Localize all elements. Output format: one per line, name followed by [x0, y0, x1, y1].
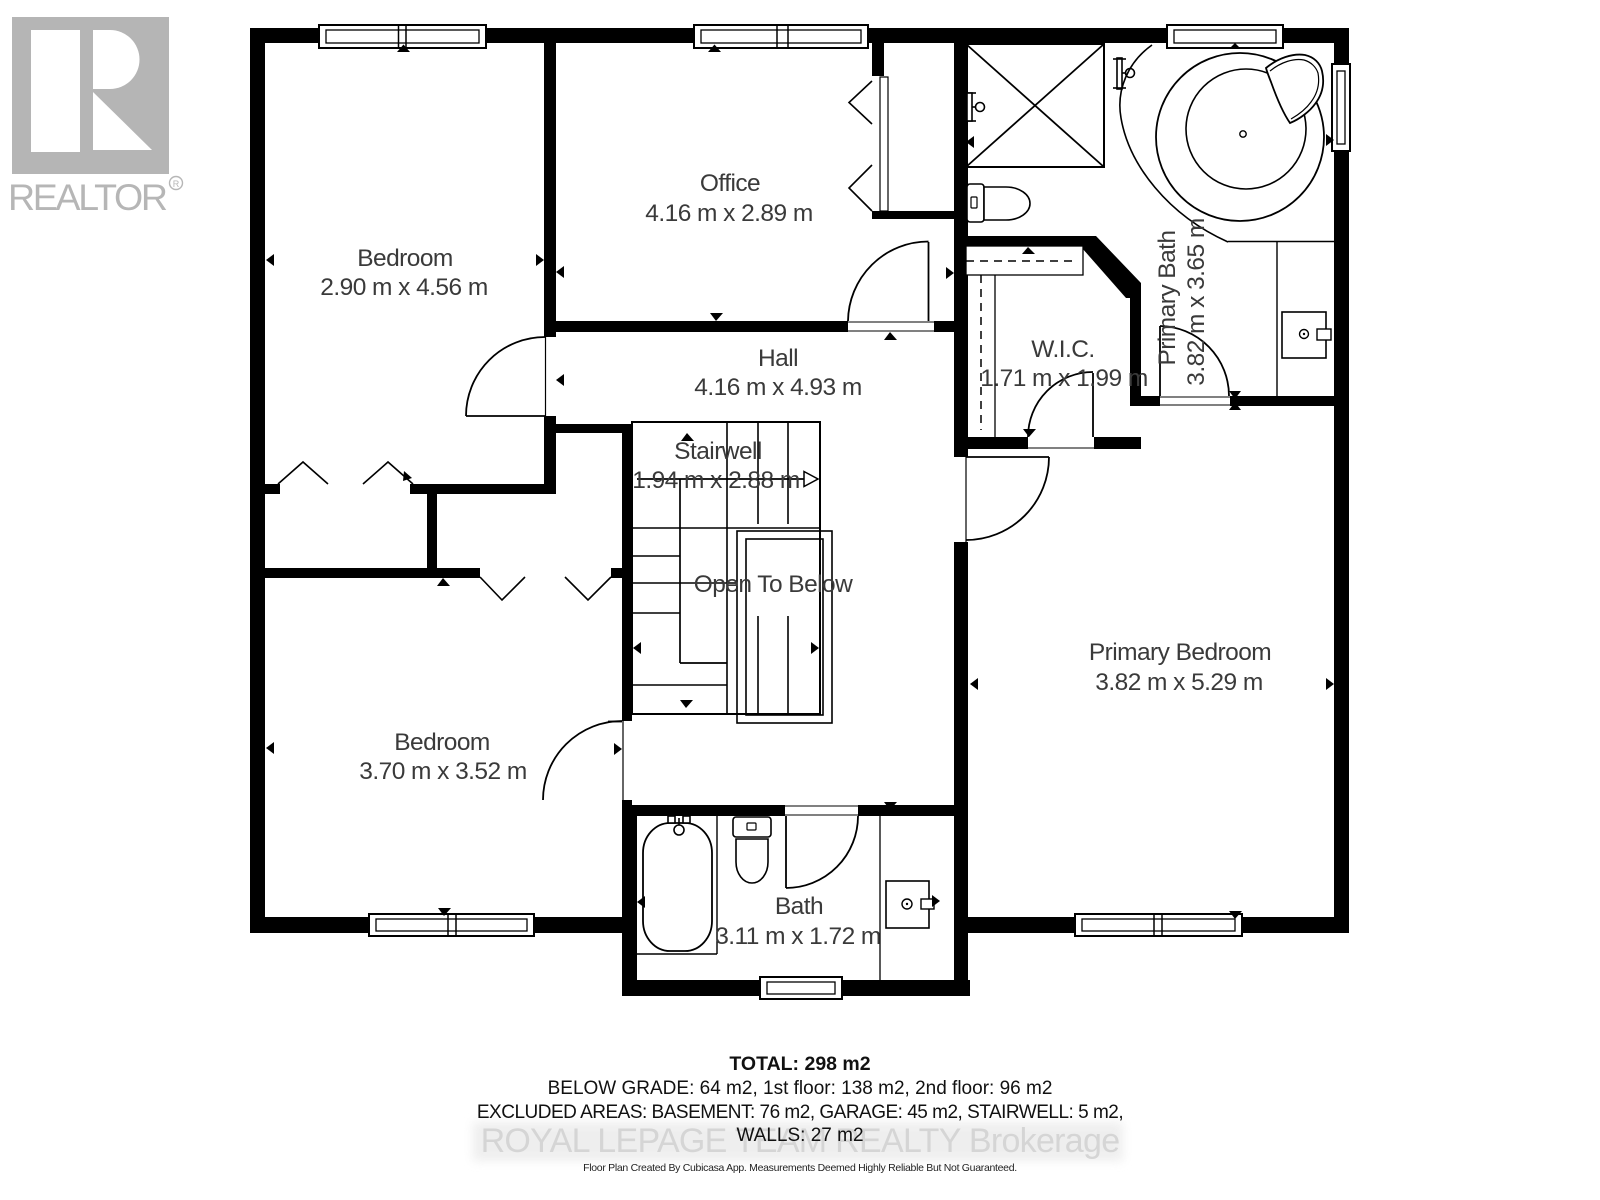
svg-text:TOTAL: 298 m2: TOTAL: 298 m2	[729, 1053, 870, 1075]
svg-text:BELOW GRADE: 64 m2, 1st floor:: BELOW GRADE: 64 m2, 1st floor: 138 m2, 2…	[548, 1078, 1053, 1099]
svg-text:1.71 m x 1.99 m: 1.71 m x 1.99 m	[980, 365, 1147, 392]
svg-text:W.I.C.: W.I.C.	[1031, 336, 1094, 363]
svg-text:Primary Bath: Primary Bath	[1154, 231, 1181, 366]
svg-text:Floor Plan Created By Cubicasa: Floor Plan Created By Cubicasa App. Meas…	[583, 1162, 1017, 1174]
svg-text:2.90 m x 4.56 m: 2.90 m x 4.56 m	[320, 274, 487, 301]
svg-text:Bedroom: Bedroom	[394, 729, 490, 756]
svg-text:4.16 m x 2.89 m: 4.16 m x 2.89 m	[645, 200, 812, 227]
svg-text:R: R	[173, 179, 180, 189]
svg-text:4.16 m x 4.93 m: 4.16 m x 4.93 m	[694, 374, 861, 401]
svg-text:Open To Below: Open To Below	[694, 571, 853, 598]
svg-text:Stairwell: Stairwell	[674, 438, 762, 465]
svg-text:3.82 m x 3.65 m: 3.82 m x 3.65 m	[1183, 218, 1210, 385]
svg-text:EXCLUDED AREAS: BASEMENT: 76 m: EXCLUDED AREAS: BASEMENT: 76 m2, GARAGE:…	[477, 1102, 1123, 1123]
svg-text:Bath: Bath	[775, 893, 823, 920]
svg-text:3.70 m x 3.52 m: 3.70 m x 3.52 m	[359, 758, 526, 785]
svg-text:3.82 m x 5.29 m: 3.82 m x 5.29 m	[1095, 669, 1262, 696]
svg-text:REALTOR: REALTOR	[8, 176, 168, 218]
svg-text:3.11 m x 1.72 m: 3.11 m x 1.72 m	[715, 923, 881, 950]
svg-text:1.94 m x 2.88 m: 1.94 m x 2.88 m	[632, 467, 799, 494]
svg-text:Hall: Hall	[758, 345, 798, 372]
svg-text:WALLS: 27 m2: WALLS: 27 m2	[736, 1125, 863, 1146]
svg-text:Office: Office	[700, 170, 760, 197]
svg-text:Bedroom: Bedroom	[357, 245, 453, 272]
svg-text:Primary Bedroom: Primary Bedroom	[1089, 639, 1271, 666]
